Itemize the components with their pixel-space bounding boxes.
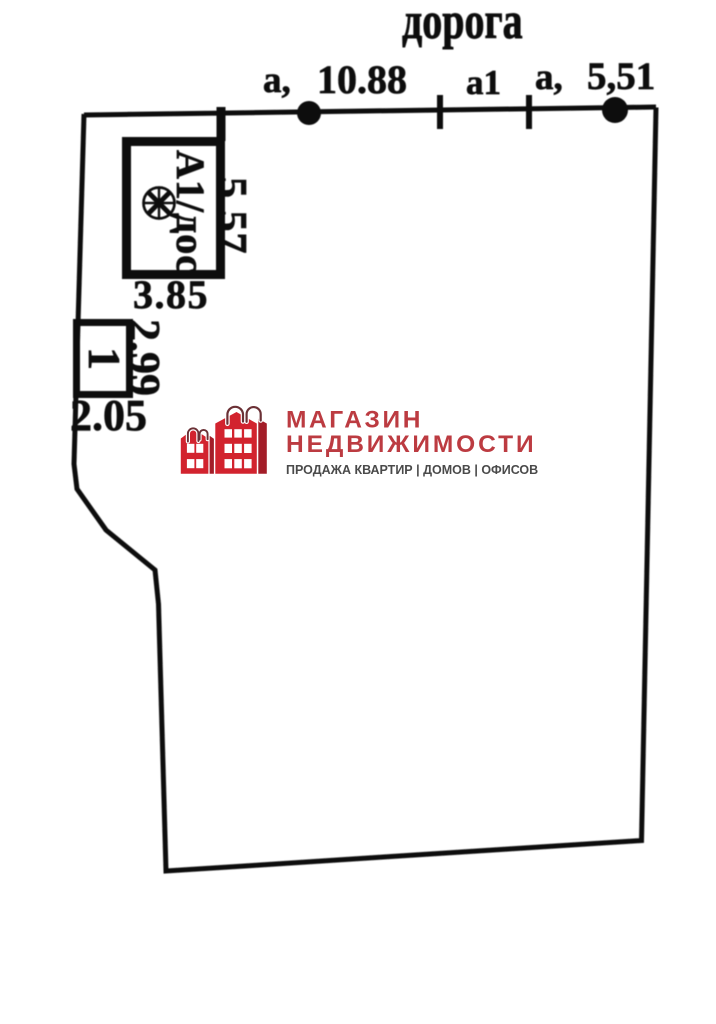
svg-text:5.57: 5.57 (208, 177, 254, 255)
svg-text:НЕДВИЖИМОСТИ: НЕДВИЖИМОСТИ (286, 431, 536, 458)
svg-text:5,51: 5,51 (587, 55, 655, 98)
svg-text:а,: а, (263, 60, 291, 101)
svg-text:2.99: 2.99 (120, 319, 169, 396)
svg-text:дорога: дорога (402, 0, 523, 50)
svg-text:3.85: 3.85 (133, 272, 209, 317)
svg-text:а,: а, (535, 57, 563, 98)
svg-text:10.88: 10.88 (317, 57, 407, 102)
svg-text:А1/дос: А1/дос (168, 150, 213, 274)
svg-text:а1: а1 (466, 63, 501, 102)
svg-text:ПРОДАЖА КВАРТИР | ДОМОВ | ОФИС: ПРОДАЖА КВАРТИР | ДОМОВ | ОФИСОВ (286, 463, 538, 477)
svg-text:2.05: 2.05 (70, 391, 147, 440)
svg-text:МАГАЗИН: МАГАЗИН (286, 407, 423, 434)
